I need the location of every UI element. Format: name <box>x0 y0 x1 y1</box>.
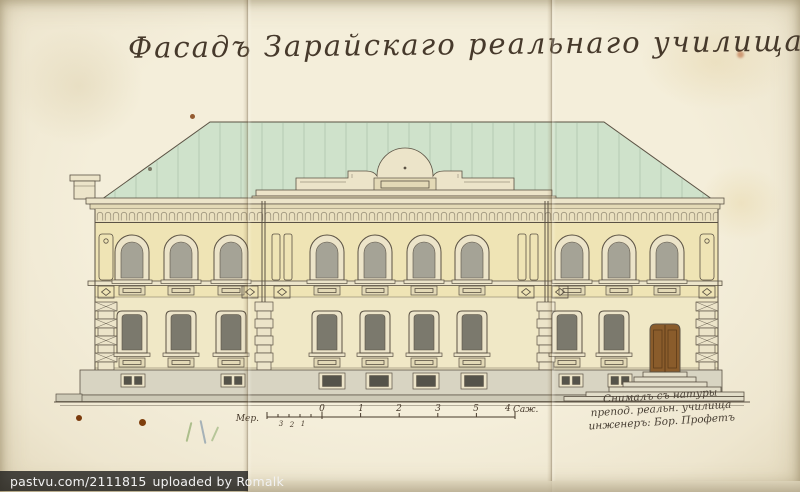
arched-window <box>307 235 347 284</box>
scale-sub-tick: 1 <box>301 420 305 428</box>
arched-window <box>404 235 444 284</box>
arched-window <box>112 235 152 284</box>
watermark-bar: pastvu.com/2111815 uploaded by Romalk <box>0 471 248 491</box>
arched-window <box>647 235 687 284</box>
arched-window <box>211 235 251 284</box>
rect-window <box>596 311 632 357</box>
rect-window <box>309 311 345 357</box>
scale-bar: Мер. 3 2 1 0 1 2 3 5 4 Саж. <box>235 404 539 429</box>
basement-window <box>221 374 245 387</box>
arched-window <box>355 235 395 284</box>
basement-window <box>461 373 487 389</box>
rect-window <box>163 311 199 357</box>
scale-sub-tick: 2 <box>289 421 295 429</box>
rect-window <box>357 311 393 357</box>
paper-bottom-edge <box>248 481 800 492</box>
basement-window <box>319 373 345 389</box>
watermark-site: pastvu.com/2111815 <box>10 474 146 489</box>
watermark-uploader: uploaded by Romalk <box>152 474 283 489</box>
scale-tick: 2 <box>395 404 402 414</box>
arched-window <box>452 235 492 284</box>
basement-window <box>121 374 145 387</box>
basement-window <box>413 373 439 389</box>
arched-window <box>161 235 201 284</box>
arched-window <box>599 235 639 284</box>
scale-tick: 3 <box>435 404 441 414</box>
arched-window <box>552 235 592 284</box>
scale-unit: Саж. <box>513 405 538 415</box>
basement-window <box>559 374 583 387</box>
rect-window <box>406 311 442 357</box>
chimney <box>70 175 100 199</box>
rect-window <box>213 311 249 357</box>
rect-window <box>549 311 585 357</box>
scale-end-tick: 4 <box>504 404 511 414</box>
lower-windows <box>114 311 632 357</box>
basement-window <box>366 373 392 389</box>
rect-window <box>454 311 490 357</box>
scanned-drawing: Фасадъ Зарайскаго реальнаго училища. <box>0 0 800 492</box>
rect-window <box>114 311 150 357</box>
paint-smudge <box>180 418 240 450</box>
scale-tick: 1 <box>358 404 364 414</box>
entrance-door <box>650 324 680 372</box>
scale-sub-tick: 3 <box>279 420 284 428</box>
scale-tick: 0 <box>319 404 325 414</box>
scale-tick: 5 <box>473 404 479 414</box>
